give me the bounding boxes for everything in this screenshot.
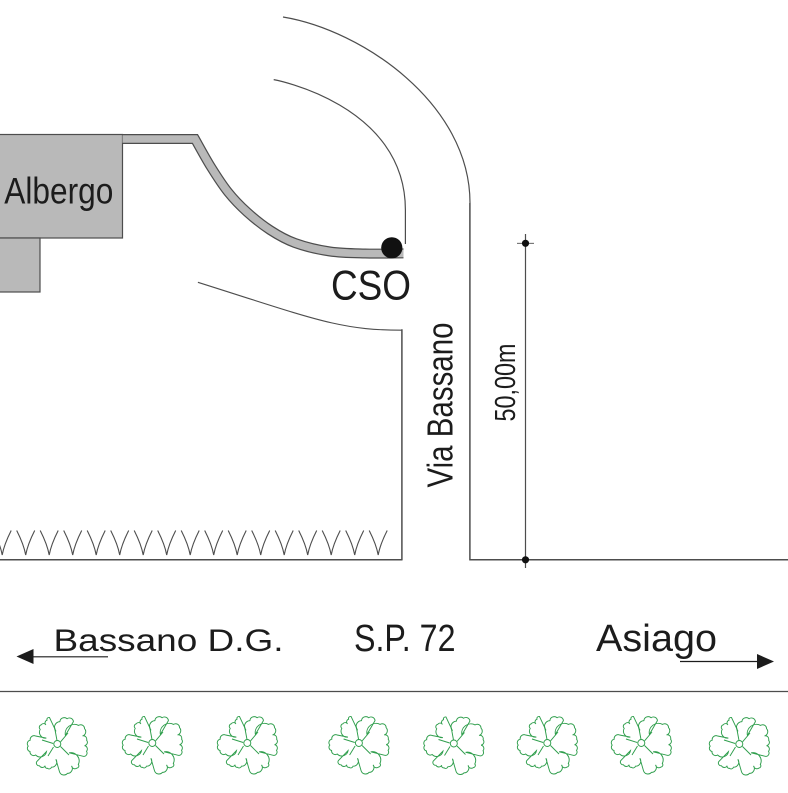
- svg-text:Albergo: Albergo: [4, 171, 113, 212]
- svg-text:Asiago: Asiago: [596, 617, 717, 660]
- svg-text:Bassano D.G.: Bassano D.G.: [54, 622, 284, 658]
- svg-text:50,00m: 50,00m: [490, 344, 522, 422]
- svg-text:S.P. 72: S.P. 72: [354, 617, 456, 660]
- svg-text:CSO: CSO: [331, 261, 411, 308]
- svg-text:Via Bassano: Via Bassano: [420, 323, 461, 488]
